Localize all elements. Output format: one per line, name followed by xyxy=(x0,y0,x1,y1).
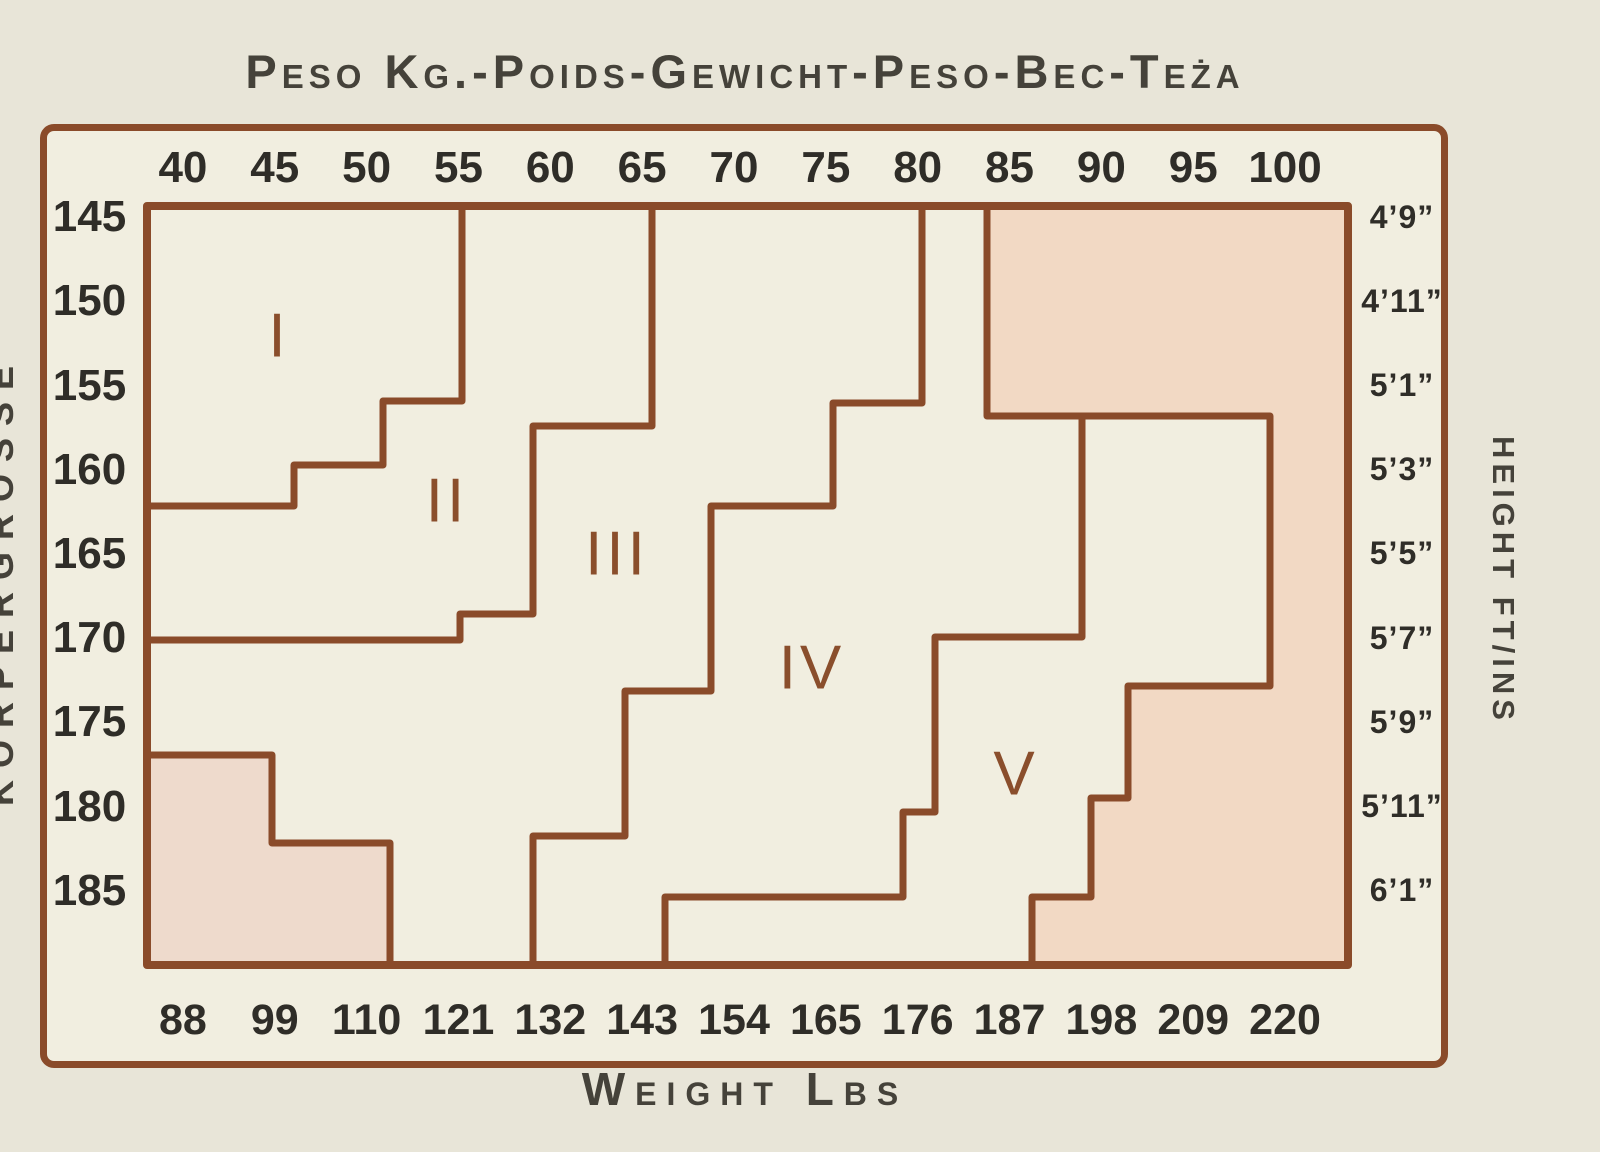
cm-tick-165: 165 xyxy=(42,512,137,596)
cm-tick-160: 160 xyxy=(42,428,137,512)
weight-lbs-axis: 8899110121132143154165176187198209220 xyxy=(137,994,1331,1046)
lbs-tick-187: 187 xyxy=(964,994,1056,1046)
height-axis-title: HEIGHT FT/INS xyxy=(1468,130,1538,1030)
cm-tick-185: 185 xyxy=(42,849,137,933)
lbs-tick-154: 154 xyxy=(688,994,780,1046)
cm-tick-170: 170 xyxy=(42,596,137,680)
lbs-tick-132: 132 xyxy=(504,994,596,1046)
lbs-tick-88: 88 xyxy=(137,994,229,1046)
kg-tick-65: 65 xyxy=(596,142,688,194)
kg-tick-100: 100 xyxy=(1239,142,1331,194)
ftin-tick-53: 5’3” xyxy=(1352,428,1452,512)
lbs-tick-121: 121 xyxy=(413,994,505,1046)
kg-tick-60: 60 xyxy=(504,142,596,194)
chart-title: Peso Kg.-Poids-Gewicht-Peso-Bec-Teża xyxy=(0,44,1490,99)
kg-tick-40: 40 xyxy=(137,142,229,194)
left-axis-title-clipped: KÖRPERGRÖSSE xyxy=(0,60,24,1100)
ftin-tick-511: 5’11” xyxy=(1352,765,1452,849)
lbs-tick-209: 209 xyxy=(1147,994,1239,1046)
lbs-tick-110: 110 xyxy=(321,994,413,1046)
height-ftin-axis: 4’9”4’11”5’1”5’3”5’5”5’7”5’9”5’11”6’1” xyxy=(1352,175,1452,933)
lbs-tick-165: 165 xyxy=(780,994,872,1046)
kg-tick-50: 50 xyxy=(321,142,413,194)
kg-tick-45: 45 xyxy=(229,142,321,194)
lbs-tick-176: 176 xyxy=(872,994,964,1046)
cm-tick-145: 145 xyxy=(42,175,137,259)
kg-tick-75: 75 xyxy=(780,142,872,194)
ftin-tick-55: 5’5” xyxy=(1352,512,1452,596)
kg-tick-80: 80 xyxy=(872,142,964,194)
size-chart-page: Peso Kg.-Poids-Gewicht-Peso-Bec-Teża III… xyxy=(0,0,1600,1152)
height-cm-axis: 145150155160165170175180185 xyxy=(42,175,137,933)
ftin-tick-57: 5’7” xyxy=(1352,596,1452,680)
cm-tick-175: 175 xyxy=(42,680,137,764)
kg-tick-90: 90 xyxy=(1055,142,1147,194)
cm-tick-150: 150 xyxy=(42,259,137,343)
weight-axis-title: Weight Lbs xyxy=(0,1062,1490,1116)
cm-tick-180: 180 xyxy=(42,765,137,849)
ftin-tick-49: 4’9” xyxy=(1352,175,1452,259)
ftin-tick-59: 5’9” xyxy=(1352,680,1452,764)
ftin-tick-411: 4’11” xyxy=(1352,259,1452,343)
weight-kg-axis: 404550556065707580859095100 xyxy=(137,142,1331,194)
kg-tick-70: 70 xyxy=(688,142,780,194)
cm-tick-155: 155 xyxy=(42,343,137,427)
kg-tick-55: 55 xyxy=(413,142,505,194)
lbs-tick-143: 143 xyxy=(596,994,688,1046)
kg-tick-95: 95 xyxy=(1147,142,1239,194)
lbs-tick-198: 198 xyxy=(1055,994,1147,1046)
lbs-tick-99: 99 xyxy=(229,994,321,1046)
outer-frame xyxy=(40,124,1448,1068)
ftin-tick-61: 6’1” xyxy=(1352,849,1452,933)
ftin-tick-51: 5’1” xyxy=(1352,343,1452,427)
lbs-tick-220: 220 xyxy=(1239,994,1331,1046)
kg-tick-85: 85 xyxy=(964,142,1056,194)
